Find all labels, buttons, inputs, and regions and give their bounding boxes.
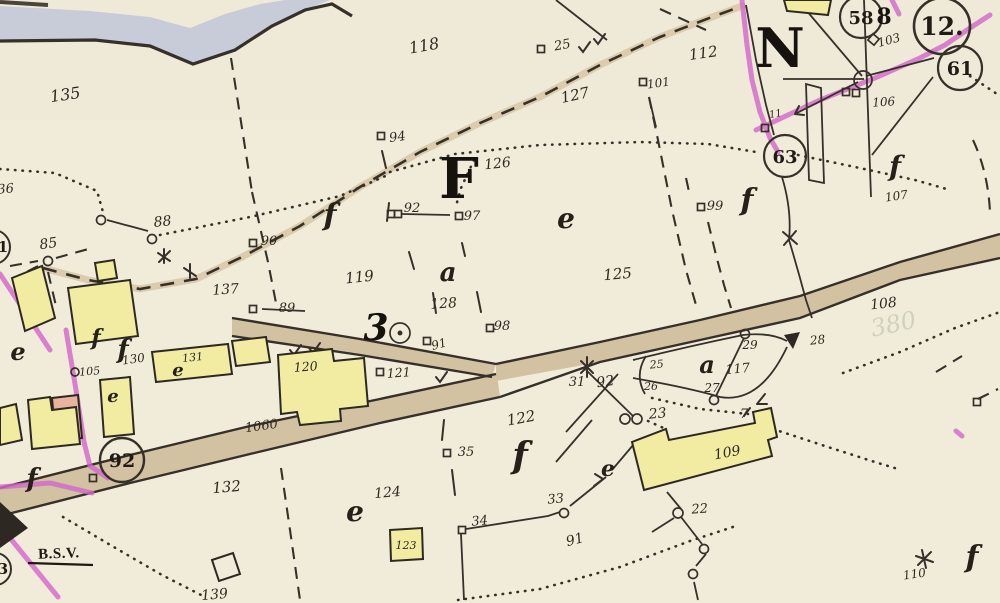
circled-1: 1 — [0, 238, 8, 256]
parcel-label-29: 29 — [741, 338, 758, 352]
parcel-label-120: 120 — [293, 358, 318, 375]
circled-3: 3 — [0, 560, 8, 578]
parcel-label-85: 85 — [39, 235, 59, 253]
parcel-label-88: 88 — [153, 213, 172, 231]
plat-map: 58 12. 61 63 92 1 3 F N 3 f f f f f f f … — [0, 0, 1000, 603]
parcel-label-98: 98 — [494, 319, 511, 334]
parcel-label-94: 94 — [388, 129, 406, 146]
parcel-label-124: 124 — [374, 484, 402, 502]
zone-e-6: e — [601, 456, 615, 482]
circled-12: 12. — [920, 12, 964, 41]
zone-a-2: a — [699, 350, 715, 379]
parcel-label-35: 35 — [458, 445, 475, 460]
parcel-label-139: 139 — [201, 586, 229, 603]
parcel-label-92-road: 92 — [596, 373, 616, 391]
parcel-label-128: 128 — [430, 295, 458, 313]
parcel-label-92-marker: 92 — [404, 201, 421, 216]
circled-61: 61 — [947, 58, 973, 80]
parcel-label-31: 31 — [569, 375, 586, 390]
parcel-label-26: 26 — [643, 380, 658, 393]
parcel-label-117: 117 — [725, 361, 752, 378]
zone-a-1: a — [440, 258, 457, 288]
parcel-label-99: 99 — [707, 199, 724, 214]
parcel-label-123: 123 — [396, 539, 417, 552]
circled-58: 58 — [848, 8, 873, 29]
circled-63: 63 — [772, 147, 797, 168]
bsv-label: B.S.V. — [38, 545, 80, 562]
parcel-label-25-fork: 25 — [648, 357, 664, 371]
parcel-label-23: 23 — [647, 405, 667, 423]
parcel-label-90: 90 — [261, 234, 278, 249]
zone-e-3: e — [107, 386, 118, 407]
map-canvas: 58 12. 61 63 92 1 3 F N 3 f f f f f f f … — [0, 0, 1000, 603]
parcel-label-125: 125 — [603, 264, 633, 284]
zone-e-2: e — [10, 337, 25, 366]
parcel-label-121: 121 — [386, 364, 411, 381]
parcel-label-97: 97 — [464, 209, 481, 224]
district-letter-N: N — [755, 16, 804, 80]
parcel-label-7: 7 — [740, 407, 749, 422]
zone-e-1: e — [557, 202, 575, 235]
parcel-label-22: 22 — [690, 501, 709, 517]
circled-92: 92 — [109, 450, 135, 472]
parcel-label-33: 33 — [547, 491, 565, 507]
parcel-label-105: 105 — [79, 364, 101, 379]
parcel-label-131: 131 — [182, 350, 204, 365]
parcel-label-34: 34 — [471, 513, 489, 529]
numeral-3: 3 — [363, 307, 388, 349]
numeral-8: 8 — [876, 4, 891, 30]
note-11: 11 — [768, 108, 782, 121]
parcel-label-89: 89 — [279, 301, 296, 316]
building-shed — [95, 260, 117, 281]
building-next — [232, 337, 270, 366]
parcel-label-36-partial: 36 — [0, 181, 15, 197]
parcel-label-27: 27 — [703, 381, 720, 395]
parcel-label-137: 137 — [212, 281, 240, 299]
parcel-label-106-ne: 106 — [872, 94, 896, 110]
well-center-dot — [398, 331, 401, 334]
parcel-label-25-top: 25 — [552, 37, 572, 55]
parcel-label-126: 126 — [483, 155, 511, 174]
parcel-label-119: 119 — [344, 267, 375, 288]
parcel-label-28: 28 — [808, 332, 826, 348]
parcel-label-132: 132 — [212, 477, 242, 497]
zone-e-5: e — [346, 495, 364, 528]
district-letter-F: F — [439, 146, 479, 212]
